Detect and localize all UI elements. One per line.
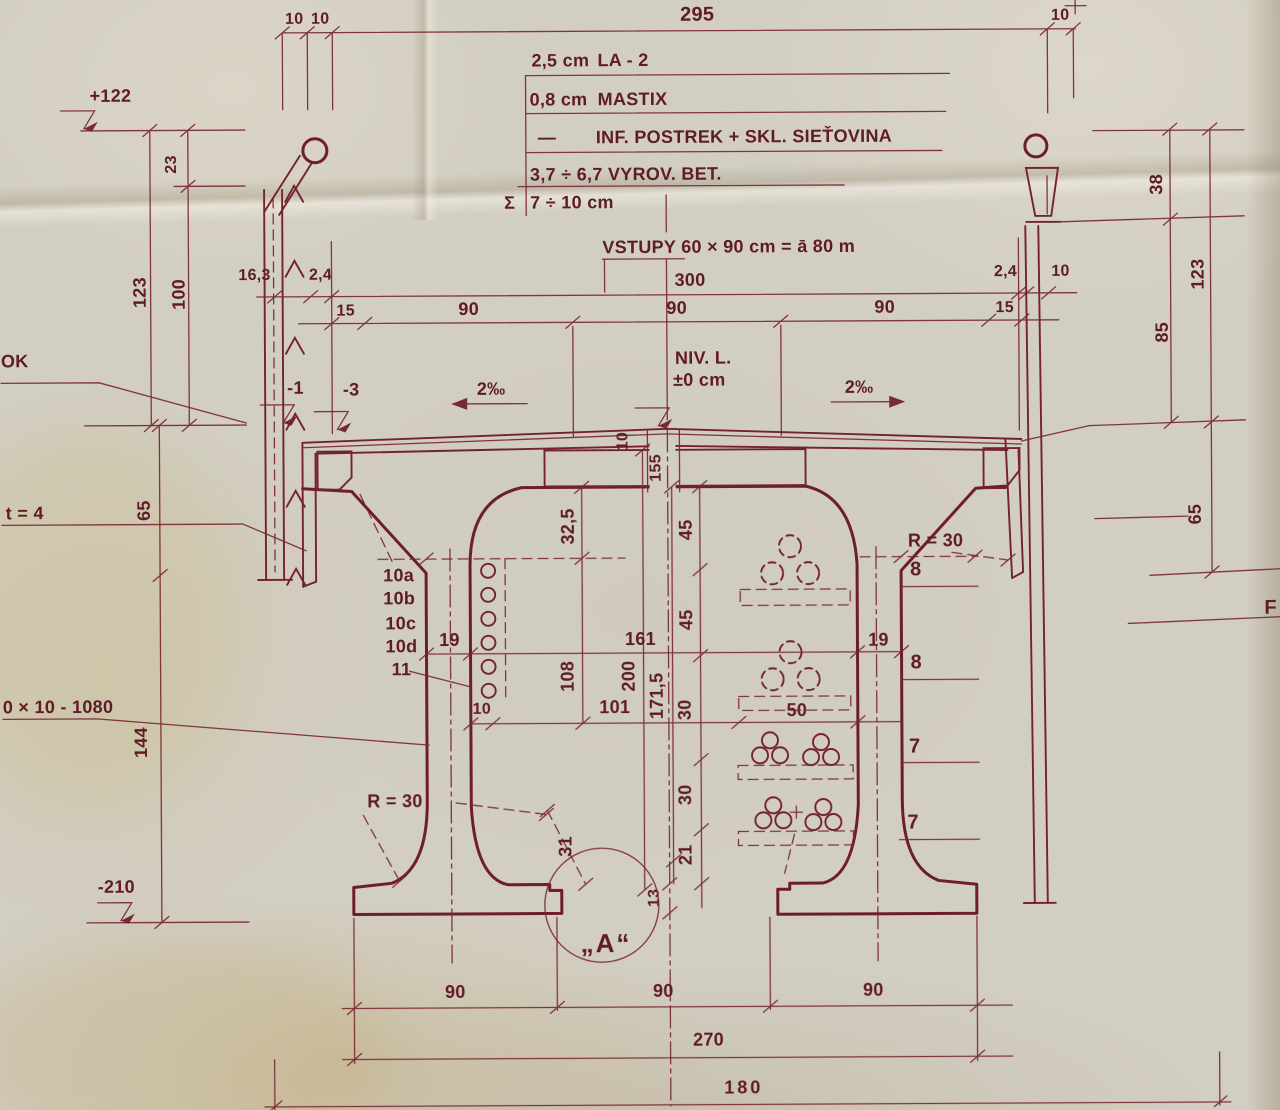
- dim-90-b: 90: [666, 298, 687, 318]
- dim-123-left: 123: [130, 277, 150, 308]
- label-plate: 0 × 10 - 1080: [3, 697, 114, 718]
- right-railing: [1020, 135, 1064, 903]
- dim-16-3: 16,3: [238, 267, 270, 284]
- label-ok: OK: [1, 351, 29, 371]
- mark-8-b: 8: [911, 652, 923, 674]
- mark-7-a: 7: [909, 736, 921, 758]
- dim-10-deck-right: 10: [1051, 263, 1069, 280]
- dim-15-right: 15: [995, 299, 1013, 316]
- bar-10b: 10b: [383, 588, 415, 608]
- radius-left: R = 30: [367, 791, 422, 811]
- level-minus210: -210: [98, 877, 135, 897]
- note3-dash: —: [538, 127, 556, 147]
- dim-13: 13: [646, 889, 663, 907]
- dim-171-5: 171,5: [647, 673, 667, 720]
- slope-left-arrow: [451, 398, 527, 410]
- dim-100: 100: [169, 279, 189, 310]
- right-girder-axis: [876, 547, 878, 961]
- bar-10a: 10a: [383, 565, 415, 585]
- dim-200: 200: [619, 661, 639, 692]
- note5: 7 ÷ 10 cm: [530, 192, 614, 212]
- dim-65-right: 65: [1185, 504, 1205, 525]
- bar-leader: [410, 671, 471, 687]
- section-centerline: [667, 430, 671, 1106]
- rebar-dashed-line: [505, 559, 506, 701]
- level-minus3: -3: [343, 379, 360, 399]
- slope-right: 2‰: [845, 377, 874, 397]
- deck-dim-row2: [298, 238, 1059, 438]
- level-minus1: -1: [287, 378, 304, 398]
- slope-left: 2‰: [477, 379, 506, 399]
- dim-180: 180: [724, 1077, 763, 1097]
- dim-101: 101: [599, 697, 630, 717]
- dim-2-4-right: 2,4: [994, 263, 1017, 280]
- right-curb-hatch: [983, 448, 1019, 488]
- bar-10d: 10d: [385, 636, 417, 656]
- left-railing: [256, 139, 329, 585]
- note1-value: 2,5 cm: [531, 50, 589, 70]
- dim-45-a: 45: [676, 519, 696, 540]
- dim-45-b: 45: [676, 609, 696, 630]
- dim-38: 38: [1146, 174, 1166, 195]
- left-dim-column: [81, 124, 249, 929]
- dim-108: 108: [558, 661, 578, 692]
- dim-2-4-left: 2,4: [309, 267, 332, 284]
- bar-leader-dashed: [358, 489, 392, 561]
- label-t4: t = 4: [6, 503, 44, 523]
- note-sigma: Σ: [504, 193, 515, 213]
- radius-right: R = 30: [908, 530, 963, 550]
- detail-label-a: „A“: [581, 928, 632, 958]
- dim-90-c: 90: [874, 297, 895, 317]
- dim-10-pavement: 10: [614, 432, 631, 450]
- level-flag-minus210: [98, 903, 135, 924]
- cross-section-drawing: 10 10 295 10 2,5 cm LA - 2 0,8 cm MASTIX…: [0, 0, 1280, 1110]
- dim-10-left-b: 10: [311, 11, 329, 28]
- note2-value: 0,8 cm: [530, 89, 588, 109]
- left-curb-hatch: [317, 452, 351, 490]
- mark-8-a: 8: [910, 559, 922, 581]
- dim-90-a: 90: [458, 299, 479, 319]
- t4-leader: [2, 524, 306, 553]
- dim-65-left: 65: [134, 500, 154, 521]
- level-flag-122: [61, 111, 98, 132]
- dim-270: 270: [693, 1030, 724, 1050]
- ok-leader: [1, 382, 246, 424]
- dim-30-b: 30: [675, 784, 695, 805]
- dim-32-5: 32,5: [558, 508, 578, 544]
- dim-23: 23: [163, 155, 180, 173]
- radius-left-leaders: [363, 802, 546, 881]
- dim-b90-a: 90: [445, 982, 466, 1002]
- rebar-circle-column: [481, 564, 496, 698]
- note2-name: MASTIX: [598, 89, 668, 109]
- dim-19-left: 19: [439, 630, 460, 650]
- niv-value: ±0 cm: [673, 370, 726, 390]
- note3-name: INF. POSTREK + SKL. SIEŤOVINA: [596, 125, 892, 148]
- slope-right-arrow: [831, 396, 905, 408]
- vstupy-note: VSTUPY 60 × 90 cm = ā 80 m: [602, 236, 855, 257]
- dim-85: 85: [1152, 322, 1172, 343]
- bar-10c: 10c: [385, 613, 416, 633]
- left-girder-axis: [450, 549, 452, 963]
- niv-label: NIV. L.: [675, 348, 732, 368]
- plate-leader: [3, 717, 429, 747]
- dim-123-right: 123: [1187, 259, 1207, 290]
- dim-144: 144: [131, 727, 151, 758]
- note4: 3,7 ÷ 6,7 VYROV. BET.: [530, 164, 722, 185]
- mark-7-b: 7: [907, 812, 919, 834]
- bar-marks-right: 8 8 7 7: [898, 558, 979, 839]
- dim-161: 161: [625, 629, 656, 649]
- dim-30-a: 30: [675, 699, 695, 720]
- dim-b90-c: 90: [863, 980, 884, 1000]
- dim-21: 21: [676, 844, 696, 865]
- dim-10-right: 10: [1051, 7, 1069, 24]
- dim-31: 31: [555, 836, 575, 857]
- dim-19-right: 19: [868, 630, 889, 650]
- blueprint-photo: 10 10 295 10 2,5 cm LA - 2 0,8 cm MASTIX…: [0, 0, 1280, 1110]
- dim-155: 155: [647, 454, 664, 482]
- dim-10-left-a: 10: [285, 11, 303, 28]
- dim-10-web: 10: [473, 701, 491, 718]
- dim-b90-b: 90: [653, 981, 674, 1001]
- level-plus122: +122: [90, 86, 132, 106]
- dim-300: 300: [675, 270, 706, 290]
- label-f: F: [1264, 597, 1277, 619]
- note1-name: LA - 2: [597, 50, 648, 70]
- bar-11: 11: [392, 659, 412, 679]
- dim-15-left: 15: [336, 302, 354, 319]
- dim-295: 295: [680, 4, 714, 26]
